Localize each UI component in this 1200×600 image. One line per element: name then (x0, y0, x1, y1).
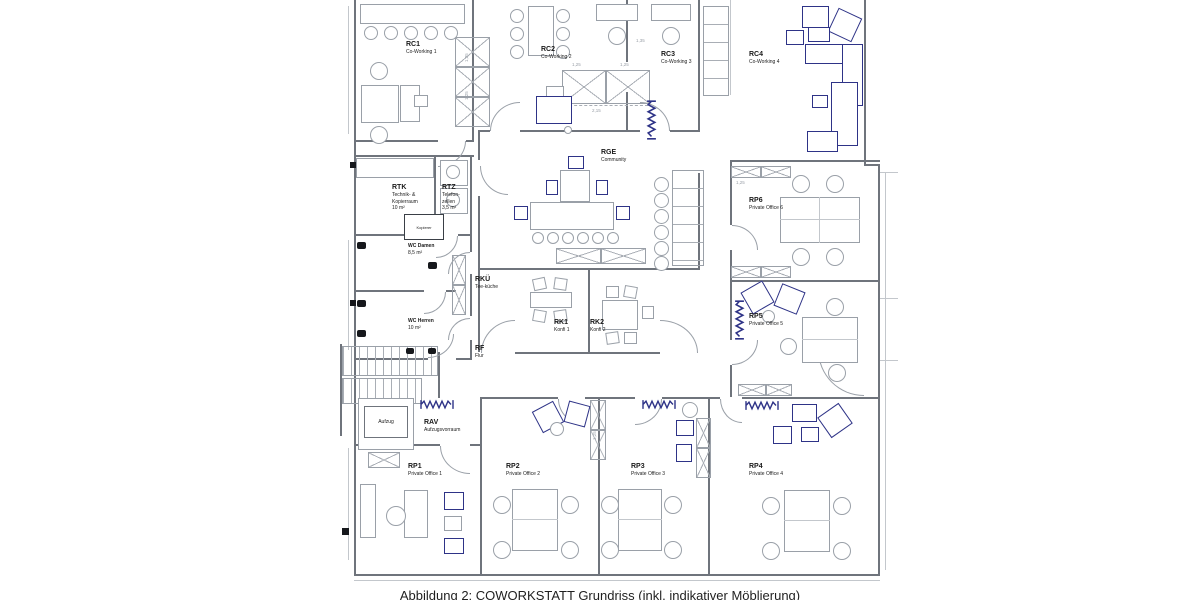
dim-label: 2,15 (592, 108, 601, 113)
rk2-chair-3 (605, 331, 620, 345)
room-label-rc2: RC2 Co-Working 2 (541, 45, 571, 61)
rge-bar-stool-6 (654, 256, 669, 271)
window-line-left-mid (348, 240, 349, 350)
room-id: RTK (392, 183, 432, 192)
rge-stool-3 (562, 232, 574, 244)
rc2-floor-socket-icon (564, 126, 572, 134)
rp1-counter (360, 484, 376, 538)
wall-rp-top-a (480, 397, 558, 399)
room-name: Private Office 6 (749, 205, 783, 212)
window-line-right (885, 172, 886, 570)
room-area: 10 m² (392, 205, 432, 212)
wall-rc3-corridor (698, 0, 700, 132)
room-id: RC2 (541, 45, 571, 54)
rk1-chair-3 (532, 309, 547, 323)
room-label-rf: RF Flur (475, 344, 484, 360)
screenshot-stage: Aufzug (0, 0, 1200, 600)
rp3-chair-2 (664, 496, 682, 514)
rp4-chair-2 (833, 497, 851, 515)
door-wc-inner (424, 292, 446, 314)
room-id: RKÜ (475, 275, 499, 284)
wall-rp1-top-b (470, 444, 480, 446)
rc1-chair-top (370, 62, 388, 80)
wall-wc-right-a (470, 155, 472, 252)
room-name: Co-Working 4 (749, 59, 779, 66)
rp6-desk-divider-h (780, 219, 860, 220)
wall-stairs-corridor (438, 352, 440, 398)
room-name: Private Office 1 (408, 471, 442, 478)
dim-label: 1,25 (736, 180, 745, 185)
dim-label: 1,25 (464, 53, 469, 62)
rc1-counter (360, 4, 465, 24)
rge-bar-stool-5 (654, 241, 669, 256)
rge-stool-1 (532, 232, 544, 244)
wall-marker-3 (342, 528, 349, 535)
door-rge (480, 166, 508, 195)
door-rp4 (720, 399, 742, 423)
coatrack-rp3 (642, 399, 676, 410)
coatrack-rp4 (745, 400, 779, 411)
rp4-armchair-3 (773, 426, 792, 444)
rc4-sofa-end (807, 131, 838, 152)
rp3-chair-b (676, 444, 692, 462)
room-id: RTZ (442, 183, 470, 192)
wall-rav-rp2 (480, 397, 482, 444)
rk2-chair-5 (642, 306, 654, 319)
rp6-desk-divider-v (819, 197, 820, 243)
door-rp1 (440, 446, 470, 474)
rc1-stool-4 (424, 26, 438, 40)
rp5-desk-divider (802, 339, 858, 340)
room-label-rp3: RP3 Private Office 3 (631, 462, 665, 478)
rp3-desk-divider (618, 519, 662, 520)
room-label-rk2: RK2 Konfi 2 (590, 318, 606, 334)
rc4-coffee-table (812, 95, 828, 108)
room-id: RGE (601, 148, 626, 157)
rc1-stool-1 (364, 26, 378, 40)
room-label-rtz: RTZ Telefon-zellen 3,5 m² (442, 183, 470, 212)
rp5-desks (802, 317, 858, 363)
wall-exterior-bottom (354, 574, 880, 576)
rp5-chair-2 (828, 364, 846, 382)
room-label-rc1: RC1 Co-Working 1 (406, 40, 436, 56)
room-label-rge: RGE Community (601, 148, 626, 164)
room-id: RP5 (749, 312, 783, 321)
rc1-stool-5 (444, 26, 458, 40)
dim-label: 1,25 (592, 431, 597, 440)
closet-rp6-top-cell1 (731, 166, 761, 178)
room-id: RP1 (408, 462, 442, 471)
dim-label: 1,25 (572, 62, 581, 67)
door-rc2 (490, 102, 520, 131)
wall-rp6-top (730, 160, 880, 162)
rc4-armchair-1 (802, 6, 829, 28)
window-tick-right-3 (880, 360, 898, 361)
rc3-desk-2 (651, 4, 691, 21)
wc-herren-urinal-2 (428, 348, 436, 354)
room-label-rp1: RP1 Private Office 1 (408, 462, 442, 478)
kitchen-column-cell1 (452, 255, 466, 285)
wall-rc1-bottom-a (354, 140, 438, 142)
room-name: Community (601, 157, 626, 164)
rc3-chair-2 (662, 27, 680, 45)
room-label-rc3: RC3 Co-Working 3 (661, 50, 691, 66)
rp2-chair-4 (561, 541, 579, 559)
wall-wc-divider-a (354, 290, 424, 292)
rc2-chair-3 (510, 45, 524, 59)
rk2-entry-curve (660, 320, 698, 353)
bench-rge-cell1 (556, 248, 601, 264)
rp2-armchair-2 (564, 401, 591, 428)
room-label-rc4: RC4 Co-Working 4 (749, 50, 779, 66)
rtk-counter (356, 158, 434, 178)
window-line-left-bottom (348, 448, 349, 560)
rge-chair-left-mid (546, 180, 558, 195)
room-area: 3,5 m² (442, 205, 470, 212)
room-name: Private Office 3 (631, 471, 665, 478)
rc4-armchair-2 (828, 8, 863, 43)
rp2-chair-2 (561, 496, 579, 514)
room-label-rp4: RP4 Private Office 4 (749, 462, 783, 478)
wall-marker-2 (350, 300, 356, 306)
room-label-rav: RAV Aufzugsvorraum (424, 418, 460, 434)
room-label-wc-herren: WC Herren 10 m² (408, 318, 434, 331)
room-name: Private Office 2 (506, 471, 540, 478)
wall-rk1-rk2 (588, 268, 590, 352)
room-name: Aufzugsvorraum (424, 427, 460, 434)
rge-bar-stool-1 (654, 177, 669, 192)
rk1-chair-2 (553, 277, 568, 291)
shelf-rc3-rc4 (703, 6, 729, 96)
rp4-desk-divider (784, 520, 830, 521)
room-id: RP4 (749, 462, 783, 471)
rk2-chair-4 (624, 332, 637, 344)
dim-label: 1,35 (636, 38, 645, 43)
room-area: 10 m² (408, 325, 434, 332)
window-line-bottom (354, 580, 880, 581)
coatrack-rge (646, 100, 657, 140)
coatrack-rp5 (734, 300, 745, 340)
bench-top-cell2 (606, 70, 650, 104)
bench-top-wavy-edge (564, 102, 648, 106)
door-rp5 (732, 340, 758, 365)
room-name: Private Office 4 (749, 471, 783, 478)
rge-stool-5 (592, 232, 604, 244)
window-line-left-top (348, 6, 349, 134)
wall-exterior-right-top (864, 0, 866, 166)
wall-rp-top-d (742, 397, 880, 399)
wall-rp1-rp2 (480, 444, 482, 575)
wall-corridor-right-b (730, 250, 732, 340)
closet-rp5-top-cell2 (761, 266, 791, 278)
rp3-chair-4 (664, 541, 682, 559)
rc2-chair-1 (510, 9, 524, 23)
rp1-chaise (404, 490, 428, 538)
rc4-side-table-1 (786, 30, 804, 45)
rp4-armchair-1 (792, 404, 817, 422)
rp3-desks (618, 489, 662, 551)
closet-rp3-right-cell1 (696, 418, 711, 448)
rge-table-main (530, 202, 614, 230)
rge-chair-right (616, 206, 630, 220)
room-label-rp6: RP6 Private Office 6 (749, 196, 783, 212)
wall-rk-bottom-a (515, 352, 590, 354)
closet-rc1-cell2 (455, 67, 490, 97)
room-label-rp2: RP2 Private Office 2 (506, 462, 540, 478)
room-label-rp5: RP5 Private Office 5 (749, 312, 783, 328)
rge-stool-4 (577, 232, 589, 244)
window-tick-right-1 (880, 172, 898, 173)
rc3-chair-1 (608, 27, 626, 45)
room-id: RP6 (749, 196, 783, 205)
closet-rp5-top-cell1 (731, 266, 761, 278)
wall-rk-bottom-b (590, 352, 660, 354)
rp5-stool-2 (780, 338, 797, 355)
rge-chair-left (514, 206, 528, 220)
bench-rge-cell2 (601, 248, 646, 264)
rp4-armchair-2 (817, 403, 853, 438)
shelf-rge-right (672, 170, 704, 266)
room-id: RP3 (631, 462, 665, 471)
rge-table-stem (560, 170, 590, 202)
wc-damen-toilet-1 (357, 242, 366, 249)
dim-label: 1,25 (620, 62, 629, 67)
room-name: Technik- & Kopierraum (392, 192, 432, 205)
room-id: RK1 (554, 318, 570, 327)
rc2-chair-2 (510, 27, 524, 41)
closet-rc1-cell1 (455, 37, 490, 67)
room-name: Co-Working 3 (661, 59, 691, 66)
rp5-chair-1 (826, 298, 844, 316)
room-label-wc-damen: WC Damen 8,5 m² (408, 243, 434, 256)
rp4-chair-4 (833, 542, 851, 560)
rc1-monitor (414, 95, 428, 107)
rc1-stool-2 (384, 26, 398, 40)
rtz-booth-1-seat (446, 165, 460, 179)
wc-damen-toilet-2 (428, 262, 437, 269)
rp6-chair-3 (792, 248, 810, 266)
wall-centre-left-a (478, 130, 480, 160)
wall-rc1-bottom-b (466, 140, 474, 142)
room-name: Tee-küche (475, 284, 499, 291)
room-name: Flur (475, 353, 484, 360)
rp3-stool (682, 402, 698, 418)
rge-stool-6 (607, 232, 619, 244)
wall-centre-top-c (670, 130, 698, 132)
rav-closet (368, 452, 400, 468)
figure-caption: Abbildung 2: COWORKSTATT Grundriss (inkl… (0, 588, 1200, 600)
rge-bar-stool-3 (654, 209, 669, 224)
rc2-chair-4 (556, 9, 570, 23)
rp1-side-table (444, 516, 462, 531)
floor-plan: Aufzug (340, 0, 888, 584)
rc3-desk-1 (596, 4, 638, 21)
room-id: RC3 (661, 50, 691, 59)
rp4-desks (784, 490, 830, 552)
rp1-stool (386, 506, 406, 526)
stairs-upper-flight (342, 346, 438, 376)
closet-rp3-left-cell1 (590, 400, 606, 430)
room-name: Telefon-zellen (442, 192, 470, 205)
room-id: RK2 (590, 318, 606, 327)
window-tick-right-2 (880, 298, 898, 299)
rp2-desk-divider (512, 519, 558, 520)
closet-rc1-cell3 (455, 97, 490, 127)
room-id: RF (475, 344, 484, 353)
rp2-desks (512, 489, 558, 551)
door-rp6 (732, 225, 758, 250)
elevator-car: Aufzug (364, 406, 408, 438)
rp3-chair-a (676, 420, 694, 436)
wall-wc-right-c (470, 340, 472, 360)
rk2-table (602, 300, 638, 330)
rp1-chair-1 (444, 492, 464, 510)
rp6-chair-1 (792, 175, 810, 193)
rk2-chair-1 (606, 286, 619, 298)
rk1-entry-curve (481, 320, 515, 353)
closet-rp3-right-cell2 (696, 448, 711, 478)
room-name: Konfi 2 (590, 327, 606, 334)
rp2-chair-3 (493, 541, 511, 559)
rp6-chair-2 (826, 175, 844, 193)
rc1-desk (361, 85, 399, 123)
closet-rp5-bottom-cell1 (738, 384, 766, 396)
rp3-chair-3 (601, 541, 619, 559)
room-id: RAV (424, 418, 460, 427)
room-label-rk1: RK1 Konfi 1 (554, 318, 570, 334)
rge-chair-head (568, 156, 584, 169)
rtk-copier: Kopierer (404, 214, 444, 240)
rp2-chair-1 (493, 496, 511, 514)
rp4-side-table (801, 427, 819, 442)
door-wc-right-b (448, 318, 470, 340)
wall-rp-top-b (585, 397, 635, 399)
room-id: RC4 (749, 50, 779, 59)
rk2-chair-2 (623, 285, 638, 299)
rk1-chair-1 (532, 277, 547, 291)
room-id: WC Damen (408, 243, 434, 250)
wc-herren-toilet-2 (357, 330, 366, 337)
wall-centre-top-b (520, 130, 640, 132)
wall-centre-left-b (478, 196, 480, 352)
rp1-chair-2 (444, 538, 464, 554)
rge-bar-stool-2 (654, 193, 669, 208)
wall-centre-top-a (480, 130, 490, 132)
dim-label: 1,25 (464, 91, 469, 100)
wc-herren-toilet-1 (357, 300, 366, 307)
rge-stool-2 (547, 232, 559, 244)
room-label-rkue: RKÜ Tee-küche (475, 275, 499, 291)
rc2-chair-5 (556, 27, 570, 41)
wall-corridor-right-c (730, 365, 732, 397)
rp4-chair-1 (762, 497, 780, 515)
closet-rp6-top-cell2 (761, 166, 791, 178)
room-id: RP2 (506, 462, 540, 471)
rge-chair-right-mid (596, 180, 608, 195)
rc4-side-table-2 (808, 27, 830, 42)
room-id: RC1 (406, 40, 436, 49)
room-name: Konfi 1 (554, 327, 570, 334)
room-label-rtk: RTK Technik- & Kopierraum 10 m² (392, 183, 432, 212)
rc1-stool-3 (404, 26, 418, 40)
room-id: WC Herren (408, 318, 434, 325)
room-name: Private Office 5 (749, 321, 783, 328)
wall-rp6-rp5 (730, 280, 880, 282)
wall-rc4-left (730, 0, 731, 95)
rp2-stool (550, 422, 564, 436)
rp3-chair-1 (601, 496, 619, 514)
wall-wc-right-b (470, 274, 472, 316)
rc1-chair-bottom (370, 126, 388, 144)
rp4-chair-3 (762, 542, 780, 560)
wall-exterior-right (878, 164, 880, 576)
closet-rp5-bottom-cell2 (766, 384, 792, 396)
room-area: 8,5 m² (408, 250, 434, 257)
rk1-table (530, 292, 572, 308)
room-name: Co-Working 1 (406, 49, 436, 56)
rge-bar-stool-4 (654, 225, 669, 240)
wall-stairwell-left (340, 344, 342, 436)
wc-herren-urinal-1 (406, 348, 414, 354)
room-name: Co-Working 2 (541, 54, 571, 61)
wall-exterior-left (354, 0, 356, 576)
rp6-desks (780, 197, 860, 243)
kitchen-column-cell2 (452, 285, 466, 315)
rp5-armchair-2 (773, 283, 805, 315)
rc2-lounge-chair (536, 96, 572, 124)
coatrack-rav (420, 399, 454, 410)
rp6-chair-4 (826, 248, 844, 266)
